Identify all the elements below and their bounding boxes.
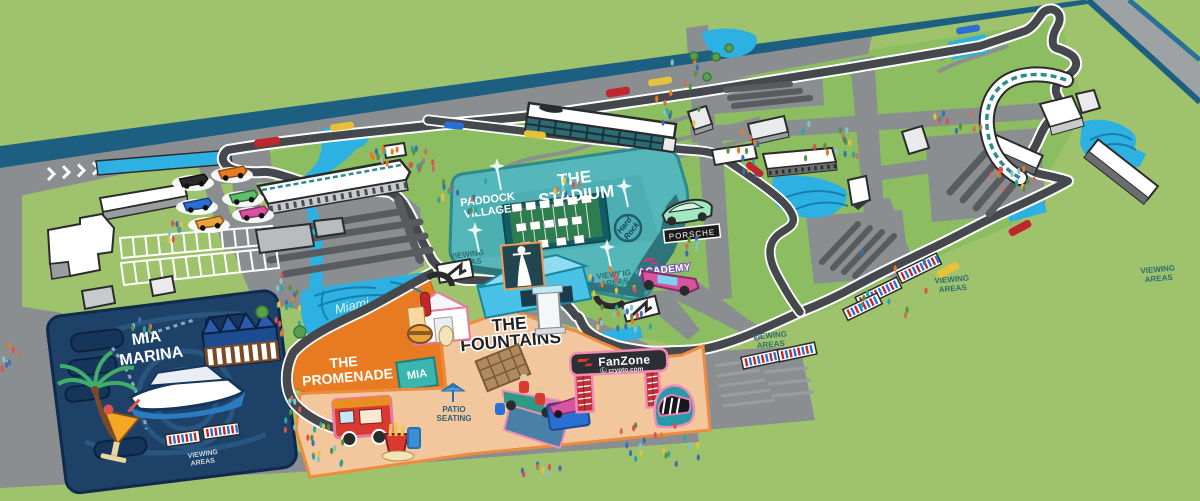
svg-text:PATIO: PATIO bbox=[442, 405, 465, 414]
svg-text:SEATING: SEATING bbox=[437, 414, 472, 423]
